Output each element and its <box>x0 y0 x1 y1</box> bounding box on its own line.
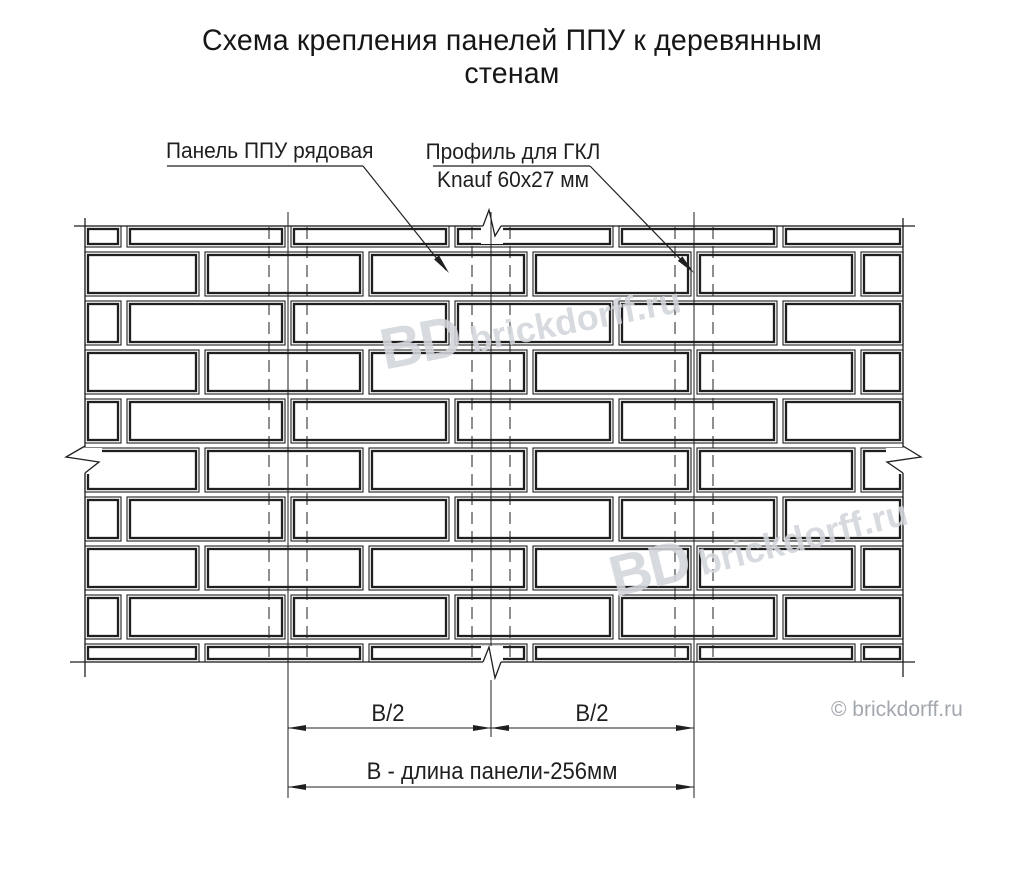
page-title-line1: Схема крепления панелей ППУ к деревянным <box>26 24 999 57</box>
drawing-sheet: Схема крепления панелей ППУ к деревянным… <box>0 0 1024 896</box>
copyright-note: © brickdorff.ru <box>831 698 963 722</box>
profile-label: Профиль для ГКЛ Knauf 60x27 мм <box>425 138 602 194</box>
brick-wall <box>85 226 903 662</box>
profile-label-line1: Профиль для ГКЛ <box>425 138 602 166</box>
profile-label-line2: Knauf 60x27 мм <box>425 166 602 194</box>
dimension-b2-right: В/2 <box>546 700 638 728</box>
break-symbols <box>66 204 922 680</box>
page-title-line2: стенам <box>26 57 999 90</box>
axis-and-profile-lines <box>269 212 713 798</box>
page-title: Схема крепления панелей ППУ к деревянным… <box>26 24 999 90</box>
dimension-b2-left: В/2 <box>342 700 434 728</box>
panel-label: Панель ППУ рядовая <box>166 138 373 164</box>
dimension-panel-length: В - длина панели-256мм <box>344 758 640 786</box>
